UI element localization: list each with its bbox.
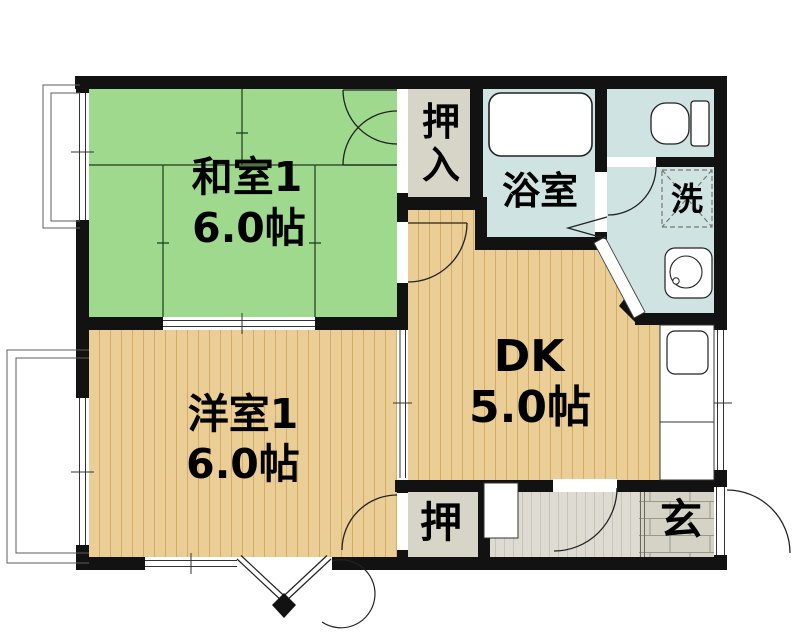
youshitsu-name-label: 洋室1 xyxy=(188,390,299,438)
toilet-tank xyxy=(691,101,709,146)
toilet-bowl xyxy=(651,103,689,144)
window-washitsu-left xyxy=(76,93,89,220)
hallway-door-leaf xyxy=(484,483,518,538)
closet-doorway xyxy=(397,493,408,550)
youshitsu-size-label: 6.0帖 xyxy=(186,440,300,488)
kitchen-sink xyxy=(667,331,708,374)
youshitsu-dk-sliding-door xyxy=(397,330,408,478)
window-kitchen-right xyxy=(714,330,727,470)
floor-plan: 和室1 6.0帖 洋室1 6.0帖 DK 5.0帖 浴室 押 入 洗 押 玄 xyxy=(0,0,800,640)
bay-window-pier xyxy=(272,593,296,618)
bathroom-label: 浴室 xyxy=(502,169,578,213)
floor-plan-drawing: 和室1 6.0帖 洋室1 6.0帖 DK 5.0帖 浴室 押 入 洗 押 玄 xyxy=(0,0,800,640)
dk-name-label: DK xyxy=(494,331,567,382)
washitsu-name-label: 和室1 xyxy=(192,153,303,201)
genkan-label: 玄 xyxy=(660,495,702,544)
oshiire-label-1: 押 xyxy=(422,100,460,144)
bathroom-doorway xyxy=(596,172,606,232)
washitsu-size-label: 6.0帖 xyxy=(192,204,306,252)
entrance-door-arc xyxy=(727,490,790,553)
washitsu-dk-doorway xyxy=(397,222,408,283)
entrance-doorway xyxy=(714,487,727,555)
basin-drain xyxy=(673,278,679,284)
shutter-box-outline xyxy=(43,85,80,228)
bathtub xyxy=(489,93,592,156)
dk-size-label: 5.0帖 xyxy=(469,382,591,433)
oshiire-label-2: 入 xyxy=(422,143,460,187)
washitsu-youshitsu-sliding-door xyxy=(163,317,315,330)
hallway-dk-doorway xyxy=(553,479,617,492)
closet-label: 押 xyxy=(420,498,462,547)
laundry-label: 洗 xyxy=(671,180,703,218)
toilet-doorway xyxy=(607,157,656,167)
oshiire-doorway xyxy=(397,89,408,193)
